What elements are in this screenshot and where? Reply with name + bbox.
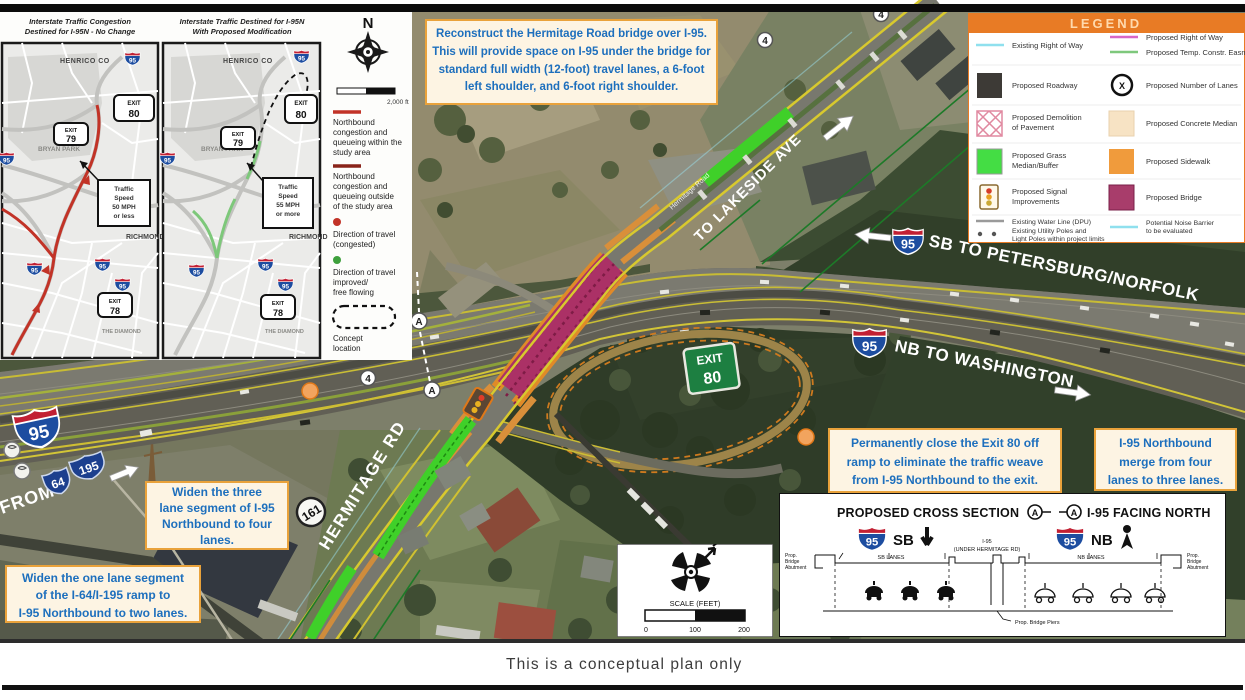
svg-text:queueing within the: queueing within the <box>333 138 402 147</box>
svg-text:HENRICO CO: HENRICO CO <box>223 58 273 65</box>
svg-text:Northbound: Northbound <box>333 172 375 181</box>
svg-text:Abutment: Abutment <box>785 565 807 571</box>
svg-text:Existing Utility Poles and: Existing Utility Poles and <box>1012 228 1087 235</box>
svg-text:Interstate Traffic Congestion: Interstate Traffic Congestion <box>29 17 131 26</box>
svg-text:Proposed Concrete Median: Proposed Concrete Median <box>1146 119 1237 128</box>
svg-text:Existing Water Line (DPU): Existing Water Line (DPU) <box>1012 219 1091 226</box>
svg-text:to be evaluated: to be evaluated <box>1146 228 1193 235</box>
svg-text:Proposed Right of Way: Proposed Right of Way <box>1146 33 1223 42</box>
svg-text:Light Poles within project lim: Light Poles within project limits <box>1012 236 1105 243</box>
svg-text:80: 80 <box>702 369 722 388</box>
svg-text:I-95: I-95 <box>982 539 991 545</box>
svg-text:Median/Buffer: Median/Buffer <box>1012 161 1059 170</box>
svg-text:N: N <box>363 15 374 32</box>
svg-text:I-95 FACING NORTH: I-95 FACING NORTH <box>1087 506 1211 520</box>
svg-text:LEGEND: LEGEND <box>1070 16 1142 31</box>
svg-text:EXIT: EXIT <box>294 101 308 107</box>
svg-text:Proposed Signal: Proposed Signal <box>1012 187 1067 196</box>
svg-text:With Proposed Modification: With Proposed Modification <box>192 27 292 36</box>
svg-text:Interstate Traffic Destined fo: Interstate Traffic Destined for I-95N <box>180 17 305 26</box>
svg-text:200: 200 <box>738 627 750 634</box>
svg-text:(congested): (congested) <box>333 240 376 249</box>
svg-text:RICHMOND: RICHMOND <box>126 234 165 241</box>
svg-text:A: A <box>428 386 435 397</box>
svg-text:or more: or more <box>276 211 301 218</box>
svg-text:study area: study area <box>333 148 371 157</box>
svg-text:79: 79 <box>66 134 76 144</box>
svg-text:A: A <box>415 317 422 328</box>
svg-text:THE DIAMOND: THE DIAMOND <box>102 329 141 335</box>
svg-text:Proposed Temp. Constr. Easm.: Proposed Temp. Constr. Easm. <box>1146 48 1245 57</box>
svg-text:Speed: Speed <box>114 195 134 202</box>
svg-text:improved/: improved/ <box>333 278 369 287</box>
svg-text:A: A <box>1032 508 1039 518</box>
svg-text:4: 4 <box>365 374 371 385</box>
svg-text:Traffic: Traffic <box>114 186 134 193</box>
svg-text:SB: SB <box>893 532 914 549</box>
svg-text:79: 79 <box>233 138 243 148</box>
svg-text:SCALE (FEET): SCALE (FEET) <box>670 599 721 608</box>
svg-text:Proposed Grass: Proposed Grass <box>1012 151 1066 160</box>
svg-text:Proposed Sidewalk: Proposed Sidewalk <box>1146 157 1210 166</box>
svg-text:NB: NB <box>1091 532 1113 549</box>
svg-text:78: 78 <box>110 306 120 316</box>
svg-text:2,000 ft: 2,000 ft <box>387 99 409 106</box>
svg-text:Proposed Bridge: Proposed Bridge <box>1146 193 1202 202</box>
svg-text:or less: or less <box>114 213 135 220</box>
svg-text:(UNDER HERMITAGE RD): (UNDER HERMITAGE RD) <box>954 547 1021 553</box>
svg-text:Northbound: Northbound <box>333 118 375 127</box>
svg-text:NB LANES: NB LANES <box>1077 555 1105 561</box>
svg-text:Proposed Roadway: Proposed Roadway <box>1012 81 1078 90</box>
svg-text:Traffic: Traffic <box>278 184 298 191</box>
svg-text:Concept: Concept <box>333 334 364 343</box>
svg-text:Speed: Speed <box>278 193 298 200</box>
svg-text:BRYAN PARK: BRYAN PARK <box>38 146 80 153</box>
svg-text:50 MPH: 50 MPH <box>112 204 136 211</box>
svg-text:Proposed Number of Lanes: Proposed Number of Lanes <box>1146 81 1238 90</box>
svg-text:SB LANES: SB LANES <box>878 555 905 561</box>
svg-text:of the study area: of the study area <box>333 202 393 211</box>
svg-text:4: 4 <box>762 36 768 47</box>
svg-text:Direction of travel: Direction of travel <box>333 268 395 277</box>
svg-text:of Pavement: of Pavement <box>1012 123 1055 132</box>
svg-text:Existing Right of Way: Existing Right of Way <box>1012 41 1083 50</box>
svg-text:free flowing: free flowing <box>333 288 374 297</box>
svg-text:Potential Noise Barrier: Potential Noise Barrier <box>1146 220 1215 227</box>
svg-text:Destined for I-95N - No Change: Destined for I-95N - No Change <box>25 27 135 36</box>
svg-text:80: 80 <box>295 110 307 121</box>
svg-text:Prop. Bridge Piers: Prop. Bridge Piers <box>1015 620 1060 626</box>
svg-text:78: 78 <box>273 308 283 318</box>
svg-text:Proposed Demolition: Proposed Demolition <box>1012 113 1082 122</box>
svg-text:RICHMOND: RICHMOND <box>289 234 328 241</box>
svg-text:0: 0 <box>644 627 648 634</box>
svg-text:PROPOSED CROSS SECTION: PROPOSED CROSS SECTION <box>837 506 1019 520</box>
svg-text:location: location <box>333 344 361 353</box>
svg-text:Direction of travel: Direction of travel <box>333 230 395 239</box>
svg-text:HENRICO CO: HENRICO CO <box>60 58 110 65</box>
svg-text:EXIT: EXIT <box>109 299 122 305</box>
svg-text:Improvements: Improvements <box>1012 197 1060 206</box>
svg-text:55 MPH: 55 MPH <box>276 202 300 209</box>
svg-text:100: 100 <box>689 627 701 634</box>
svg-text:X: X <box>1119 81 1125 91</box>
svg-text:THE DIAMOND: THE DIAMOND <box>265 329 304 335</box>
svg-text:EXIT: EXIT <box>272 301 285 307</box>
svg-text:EXIT: EXIT <box>127 101 141 107</box>
svg-text:80: 80 <box>128 109 140 120</box>
svg-text:congestion and: congestion and <box>333 182 387 191</box>
svg-text:congestion and: congestion and <box>333 128 387 137</box>
svg-text:A: A <box>1071 508 1078 518</box>
svg-text:queueing outside: queueing outside <box>333 192 394 201</box>
svg-text:Abutment: Abutment <box>1187 565 1209 571</box>
